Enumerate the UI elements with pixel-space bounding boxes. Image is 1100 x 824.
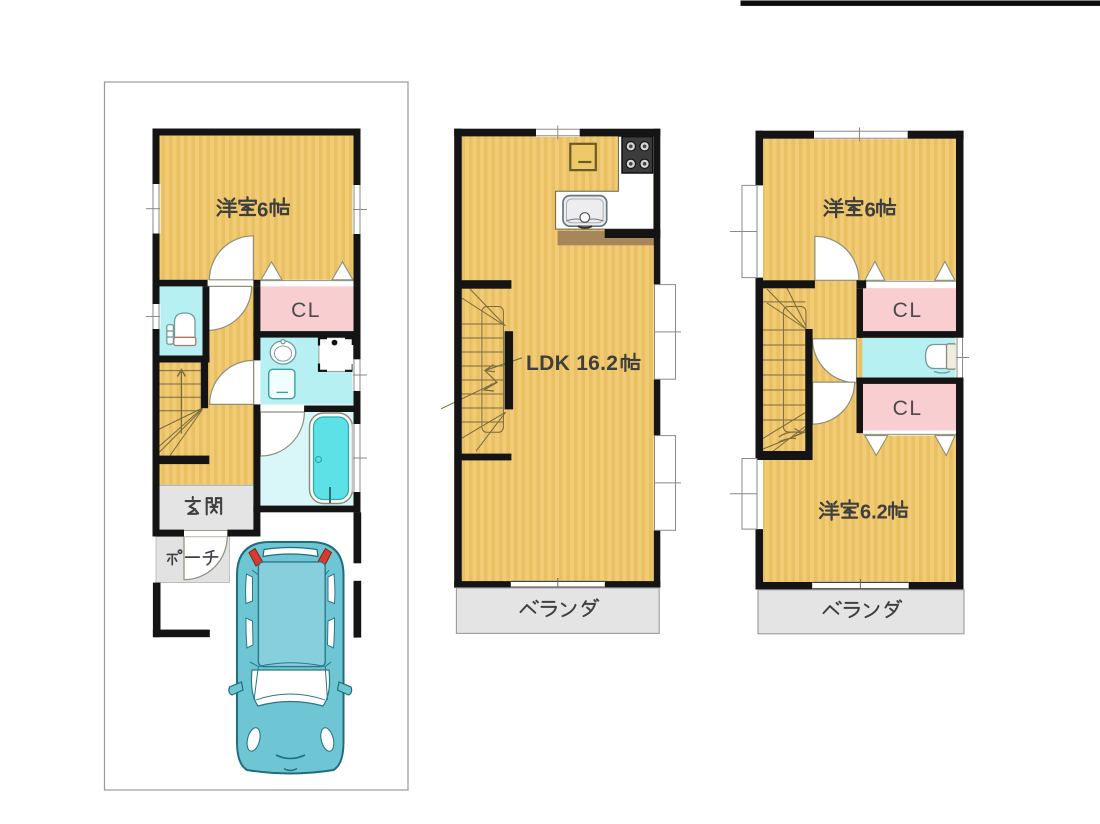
svg-text:6.2: 6.2 — [860, 502, 888, 524]
svg-text:LDK 16.2: LDK 16.2 — [526, 352, 618, 375]
svg-text:6: 6 — [865, 198, 876, 221]
svg-text:6: 6 — [257, 199, 268, 222]
svg-text:CL: CL — [893, 299, 923, 322]
svg-text:CL: CL — [893, 397, 923, 420]
svg-text:CL: CL — [291, 299, 321, 322]
